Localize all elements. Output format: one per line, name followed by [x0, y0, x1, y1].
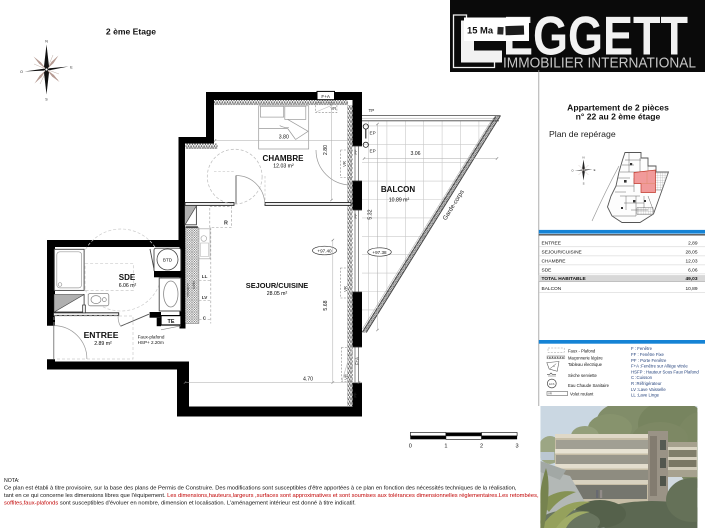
svg-text:2 ème Etage: 2 ème Etage [106, 27, 156, 37]
svg-text:PF: PF [353, 392, 358, 398]
svg-text:F : Fenêtre: F : Fenêtre [631, 346, 653, 351]
svg-text:+: + [553, 364, 555, 368]
svg-text:Tableau électrique: Tableau électrique [568, 362, 603, 367]
svg-text:10,89: 10,89 [685, 286, 697, 292]
svg-text:VR: VR [548, 392, 552, 396]
svg-text:FF : Fenêtre Fixe: FF : Fenêtre Fixe [631, 352, 665, 357]
svg-text:49,03: 49,03 [685, 276, 697, 282]
svg-text:BTD: BTD [163, 258, 173, 263]
svg-text:retombée: retombée [186, 283, 190, 297]
svg-text:S: S [583, 182, 585, 186]
svg-text:LL :Lave Linge: LL :Lave Linge [631, 393, 660, 398]
svg-text:1: 1 [444, 444, 447, 450]
svg-text:12.03 m²: 12.03 m² [273, 164, 294, 170]
svg-text:LV: LV [202, 295, 208, 300]
svg-text:+97.38: +97.38 [372, 250, 387, 255]
svg-text:EP: EP [370, 131, 376, 136]
svg-text:2: 2 [480, 444, 483, 450]
svg-text:soffite: soffite [192, 281, 196, 290]
svg-text:2.89 m²: 2.89 m² [94, 341, 112, 347]
svg-text:soffites,faux-plafonds sont su: soffites,faux-plafonds sont susceptibles… [4, 501, 356, 507]
svg-text:Sèche serviette: Sèche serviette [568, 373, 598, 378]
svg-text:3: 3 [516, 444, 519, 450]
svg-text:VR: VR [342, 161, 347, 167]
svg-text:LV :Lave Vaisselle: LV :Lave Vaisselle [631, 387, 666, 392]
svg-text:R :Réfrigérateur: R :Réfrigérateur [631, 381, 662, 386]
svg-text:ECS: ECS [549, 382, 555, 386]
svg-text:tant en ce qui concerne les di: tant en ce qui concerne les dimensions l… [4, 493, 539, 499]
svg-text:EP: EP [370, 149, 376, 154]
svg-text:28,05: 28,05 [685, 249, 697, 255]
svg-text:12,03: 12,03 [685, 258, 697, 264]
svg-text:CHAMBRE: CHAMBRE [263, 154, 305, 163]
svg-text:+97.40: +97.40 [317, 249, 332, 254]
svg-text:E: E [594, 168, 596, 172]
svg-text:ENTREE: ENTREE [84, 330, 119, 340]
svg-text:3.06: 3.06 [410, 151, 420, 157]
svg-text:PF: PF [353, 149, 358, 155]
svg-text:CHAMBRE: CHAMBRE [542, 258, 566, 264]
svg-text:2,89: 2,89 [688, 240, 698, 246]
svg-text:n° 22 au 2 ème étage: n° 22 au 2 ème étage [576, 112, 661, 122]
svg-text:PF : Porte Fenêtre: PF : Porte Fenêtre [631, 358, 667, 363]
svg-text:ENTREE: ENTREE [542, 240, 561, 246]
svg-text:PF: PF [353, 213, 358, 219]
svg-text:HSFP : Hauteur Sous Faux Plafo: HSFP : Hauteur Sous Faux Plafond [631, 369, 699, 374]
svg-text:O: O [20, 70, 23, 74]
svg-text:HSP+ 2.20m: HSP+ 2.20m [138, 340, 164, 345]
svg-text:2.80: 2.80 [323, 145, 329, 155]
svg-text:R: R [224, 220, 228, 226]
svg-text:LL: LL [202, 274, 208, 279]
svg-text:5.32: 5.32 [368, 209, 374, 219]
svg-text:5.68: 5.68 [323, 300, 329, 310]
svg-text:TOTAL HABITABLE: TOTAL HABITABLE [542, 276, 587, 282]
svg-text:SEJOUR/CUISINE: SEJOUR/CUISINE [542, 249, 582, 255]
svg-text:IMMOBILIER INTERNATIONAL: IMMOBILIER INTERNATIONAL [503, 56, 696, 72]
svg-text:4.70: 4.70 [303, 376, 313, 382]
svg-text:F+A: F+A [355, 357, 360, 365]
svg-text:15 Ma: 15 Ma [467, 25, 494, 36]
svg-text:F+A: F+A [321, 94, 330, 99]
svg-text:TE: TE [168, 319, 175, 325]
svg-text:6,06: 6,06 [688, 268, 698, 274]
svg-text:Volet roulant: Volet roulant [570, 391, 594, 396]
svg-text:VR: VR [344, 374, 349, 380]
svg-text:Ce plan est établi à titre pro: Ce plan est établi à titre provisoire, s… [4, 486, 517, 492]
svg-text:SEJOUR/CUISINE: SEJOUR/CUISINE [246, 281, 308, 290]
svg-text:F+A :Fenêtre sur Allège vitrée: F+A :Fenêtre sur Allège vitrée [631, 364, 688, 369]
svg-text:TP: TP [369, 108, 375, 113]
svg-text:Plan de repérage: Plan de repérage [549, 129, 616, 139]
svg-text:N: N [45, 40, 48, 44]
svg-text:10.89 m²: 10.89 m² [389, 198, 410, 204]
svg-text:NOTA:: NOTA: [4, 478, 19, 484]
svg-text:VR: VR [343, 286, 348, 292]
svg-text:0: 0 [409, 444, 412, 450]
svg-text:Eau Chaude Sanitaire: Eau Chaude Sanitaire [568, 383, 610, 388]
svg-text:Faux-plafond: Faux-plafond [138, 334, 165, 339]
svg-text:BALCON: BALCON [542, 286, 562, 292]
svg-text:Maçonnerie légère: Maçonnerie légère [568, 355, 603, 360]
svg-text:28.05 m²: 28.05 m² [267, 291, 288, 297]
svg-text:6.06 m²: 6.06 m² [119, 283, 137, 289]
svg-text:Faux - Plafond: Faux - Plafond [568, 348, 596, 353]
svg-text:BALCON: BALCON [381, 185, 415, 194]
svg-text:3.80: 3.80 [279, 135, 289, 141]
svg-text:N: N [582, 156, 584, 160]
svg-text:SDE: SDE [542, 268, 552, 274]
svg-text:C :Cuisson: C :Cuisson [631, 375, 653, 380]
